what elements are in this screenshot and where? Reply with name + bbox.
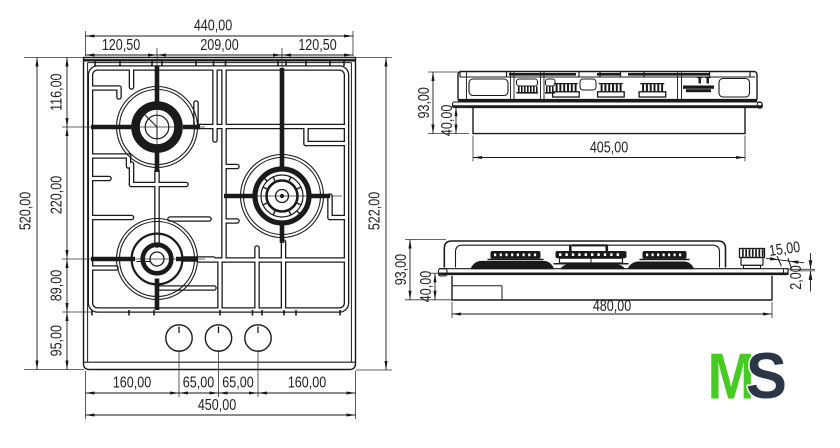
svg-text:450,00: 450,00 [198, 396, 237, 414]
svg-text:120,50: 120,50 [298, 35, 337, 53]
svg-text:40,00: 40,00 [417, 271, 435, 303]
svg-text:160,00: 160,00 [113, 373, 152, 391]
svg-text:160,00: 160,00 [288, 373, 327, 391]
svg-text:480,00: 480,00 [593, 297, 632, 315]
svg-text:209,00: 209,00 [200, 35, 239, 53]
svg-text:93,00: 93,00 [415, 87, 433, 119]
svg-text:2,00: 2,00 [787, 265, 805, 290]
svg-text:522,00: 522,00 [365, 192, 383, 231]
svg-text:40,00: 40,00 [438, 105, 456, 137]
svg-text:405,00: 405,00 [590, 138, 629, 156]
svg-text:120,50: 120,50 [102, 35, 141, 53]
svg-text:116,00: 116,00 [47, 73, 65, 111]
svg-text:520,00: 520,00 [16, 192, 34, 231]
svg-text:95,00: 95,00 [47, 325, 65, 357]
svg-text:440,00: 440,00 [194, 16, 233, 34]
svg-text:220,00: 220,00 [47, 176, 65, 215]
svg-text:S: S [746, 341, 787, 413]
svg-text:65,00: 65,00 [183, 373, 215, 391]
svg-text:65,00: 65,00 [222, 373, 254, 391]
svg-text:93,00: 93,00 [392, 254, 410, 286]
svg-text:89,00: 89,00 [47, 270, 65, 302]
svg-text:15,00: 15,00 [768, 237, 802, 259]
